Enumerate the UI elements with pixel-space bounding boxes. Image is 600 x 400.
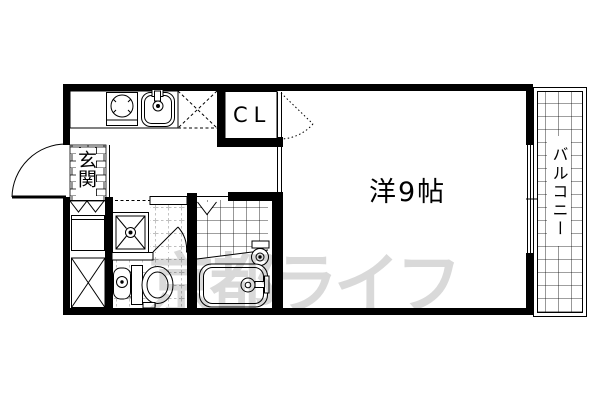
entrance-step-zigzag bbox=[70, 201, 105, 213]
wall-bath-top bbox=[228, 192, 272, 201]
entrance-label: 玄関 bbox=[75, 150, 97, 188]
watermark: 京都ライフ bbox=[148, 252, 458, 318]
main-room-label: 洋9帖 bbox=[369, 177, 446, 208]
toilet-room-wall bbox=[112, 253, 153, 261]
floor-plan: バルコニー bbox=[0, 0, 600, 400]
wall-top bbox=[63, 84, 533, 91]
wall-left-upper bbox=[63, 84, 70, 145]
washing-machine-pan bbox=[113, 213, 149, 253]
wall-right-upper bbox=[526, 84, 533, 145]
closet: CL bbox=[225, 92, 277, 139]
entrance: 玄関 bbox=[12, 144, 110, 212]
entrance-door-arc bbox=[12, 144, 70, 197]
closet-label: CL bbox=[233, 103, 271, 127]
meter-box bbox=[72, 258, 106, 308]
wash-basin-icon bbox=[114, 268, 131, 299]
wall-left-lower bbox=[63, 197, 70, 315]
refrigerator-space bbox=[178, 91, 217, 128]
kitchen-counter bbox=[70, 90, 217, 129]
balcony: バルコニー bbox=[534, 88, 587, 317]
mainroom-door-arc bbox=[278, 93, 313, 139]
shelf-partition bbox=[150, 197, 187, 205]
balcony-label: バルコニー bbox=[550, 146, 569, 239]
wall-kitchen-closet bbox=[217, 84, 225, 144]
floor-plan-drawing: バルコニー bbox=[0, 0, 600, 400]
shoe-cabinet bbox=[72, 216, 105, 251]
wall-right-lower bbox=[526, 253, 533, 315]
